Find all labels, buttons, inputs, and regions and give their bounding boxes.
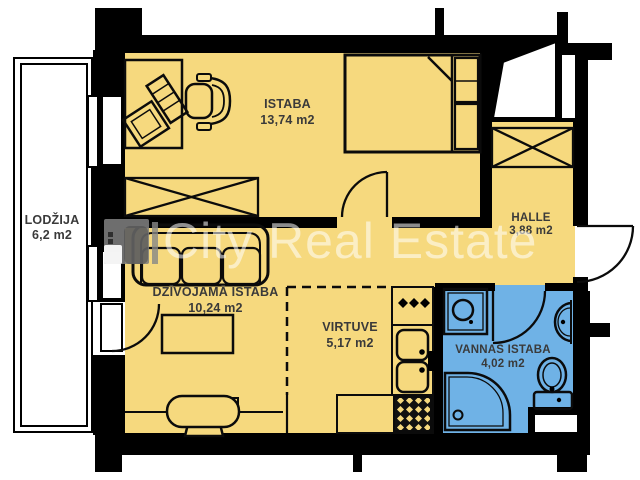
wall-segment [435,8,444,40]
window-icon [87,95,99,168]
wall-segment [353,455,362,472]
room-area: 4,02 m2 [443,357,563,371]
wall-segment [95,455,122,472]
room-area: 3,88 m2 [488,225,574,238]
room-area: 5,17 m2 [300,335,400,351]
room-area: 13,74 m2 [230,112,345,128]
wall-segment [588,323,610,337]
wall-segment [392,217,483,228]
room-name: ISTABA [230,96,345,112]
room-name: HALLE [488,212,574,225]
window-icon [101,250,123,300]
room-name: VIRTUVE [300,319,400,335]
room-label-vannas: VANNAS ISTABA 4,02 m2 [443,343,563,371]
room-floor-halle [490,115,575,287]
room-label-lodzija: LODŽIJA 6,2 m2 [10,213,94,243]
wall-segment [433,287,443,433]
wall-segment [557,12,568,40]
room-label-dzivojama: DZĪVOJAMĀ ISTABA 10,24 m2 [128,285,303,316]
wall-segment [480,48,575,122]
wall-segment [545,283,577,291]
room-label-istaba: ISTABA 13,74 m2 [230,96,345,128]
room-label-virtuve: VIRTUVE 5,17 m2 [300,319,400,351]
wall-segment [123,217,337,228]
door-swing-halle-exit [577,226,633,282]
window-icon [101,95,123,166]
wall-segment [573,53,588,226]
loggia-inner-outline [20,63,88,427]
room-label-halle: HALLE 3,88 m2 [488,212,574,238]
room-name: DZĪVOJAMĀ ISTABA [128,285,303,301]
balcony-door-leaf [100,303,123,352]
room-area: 10,24 m2 [128,301,303,317]
wall-segment [95,433,590,455]
room-name: VANNAS ISTABA [443,343,563,357]
floor-plan: LODŽIJA 6,2 m2 ISTABA 13,74 m2 HALLE 3,8… [0,0,640,480]
room-name: LODŽIJA [10,213,94,228]
wall-segment [557,440,587,472]
window-icon [87,245,99,302]
wall-segment [435,283,495,291]
room-floor-istaba [123,53,483,228]
wall-segment [95,8,142,53]
shaft-niche [535,415,577,432]
room-area: 6,2 m2 [10,228,94,243]
